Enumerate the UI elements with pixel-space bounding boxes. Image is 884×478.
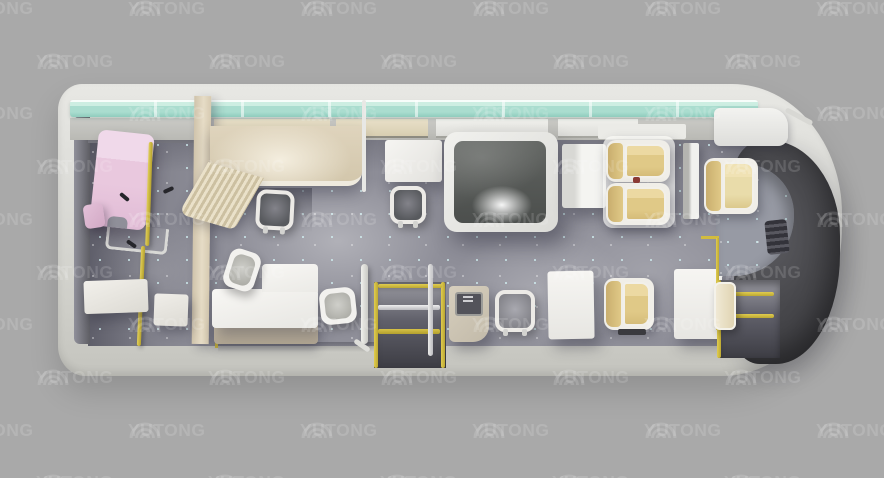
- seat-headrest: [608, 186, 623, 222]
- seat-headrest: [606, 281, 621, 327]
- yutong-logo-icon: [724, 50, 758, 71]
- yutong-wordmark: YUTONG: [128, 0, 206, 18]
- yutong-wordmark: YUTONG: [816, 420, 884, 440]
- side-table: [83, 279, 148, 314]
- yutong-wordmark: YUTONG: [472, 0, 550, 18]
- device-table-top: [454, 141, 546, 223]
- yutong-wordmark: YUTONG: [644, 0, 722, 18]
- yutong-logo-icon: [36, 366, 70, 387]
- yutong-wordmark: YUTONG: [724, 472, 802, 478]
- yutong-wordmark: YUTONG: [816, 0, 884, 18]
- yutong-wordmark: YUTONG: [208, 51, 286, 71]
- stair-rail: [374, 282, 378, 368]
- stool-chair: [495, 290, 535, 332]
- table: [547, 271, 594, 340]
- seat-headrest: [608, 143, 623, 179]
- yutong-wordmark: YUTONG: [552, 51, 630, 71]
- yutong-logo-icon: [300, 0, 334, 18]
- stair-pole: [428, 264, 433, 356]
- exam-bed-notch: [107, 216, 128, 229]
- yutong-wordmark: YUTONG: [0, 314, 34, 334]
- sink-faucet: [463, 300, 473, 302]
- yutong-wordmark: YUTONG: [380, 472, 458, 478]
- yutong-wordmark: YUTONG: [0, 0, 34, 18]
- consult-desk-wing: [262, 264, 318, 292]
- yutong-logo-icon: [472, 0, 506, 18]
- yutong-wordmark: YUTONG: [644, 420, 722, 440]
- yutong-logo-icon: [552, 471, 586, 478]
- yutong-logo-icon: [300, 419, 334, 440]
- yutong-logo-icon: [816, 102, 850, 123]
- yutong-wordmark: YUTONG: [36, 472, 114, 478]
- yutong-wordmark: YUTONG: [0, 420, 34, 440]
- yutong-wordmark: YUTONG: [300, 0, 378, 18]
- seat-cushion: [625, 144, 666, 178]
- yutong-wordmark: YUTONG: [472, 420, 550, 440]
- yutong-logo-icon: [552, 50, 586, 71]
- front-door-seat-panel: [714, 282, 736, 330]
- yutong-logo-icon: [644, 419, 678, 440]
- seatbelt-buckle: [633, 177, 640, 183]
- stool-chair: [255, 189, 295, 231]
- yutong-wordmark: YUTONG: [36, 51, 114, 71]
- seat-headrest: [706, 161, 721, 211]
- yutong-logo-icon: [380, 471, 414, 478]
- partition-wall-2: [683, 143, 699, 219]
- cabinet-table: [385, 140, 442, 182]
- passenger-seat: [606, 140, 670, 182]
- bus-floorplan-render: YUTONGYUTONGYUTONGYUTONGYUTONGYUTONGYUTO…: [0, 0, 884, 478]
- yutong-logo-icon: [208, 50, 242, 71]
- yutong-wordmark: YUTONG: [816, 103, 884, 123]
- stool-chair: [390, 186, 426, 224]
- yutong-wordmark: YUTONG: [0, 103, 34, 123]
- sink-basin: [455, 292, 483, 316]
- seat-cushion: [623, 282, 650, 326]
- yutong-wordmark: YUTONG: [0, 209, 34, 229]
- yutong-logo-icon: [380, 50, 414, 71]
- yutong-logo-icon: [36, 50, 70, 71]
- yutong-wordmark: YUTONG: [724, 51, 802, 71]
- stair-rail: [441, 282, 445, 368]
- seat-cushion: [723, 162, 754, 210]
- passenger-seat: [604, 278, 654, 330]
- exam-stool: [82, 203, 105, 230]
- front-roof-panel: [714, 108, 788, 146]
- yutong-wordmark: YUTONG: [208, 472, 286, 478]
- yutong-wordmark: YUTONG: [128, 420, 206, 440]
- yutong-logo-icon: [816, 0, 850, 18]
- yutong-logo-icon: [644, 0, 678, 18]
- roof-support-pole: [362, 100, 366, 192]
- consult-desk: [212, 289, 318, 328]
- small-table: [153, 293, 188, 326]
- yutong-wordmark: YUTONG: [300, 420, 378, 440]
- yutong-logo-icon: [208, 471, 242, 478]
- sink-cabinet: [449, 286, 489, 342]
- side-window-glass-strip: [70, 100, 758, 117]
- yutong-logo-icon: [36, 471, 70, 478]
- yutong-wordmark: YUTONG: [552, 472, 630, 478]
- driver-seat: [704, 158, 758, 214]
- engine-grille: [764, 219, 789, 255]
- yutong-logo-icon: [724, 471, 758, 478]
- seat-cushion: [625, 187, 666, 221]
- door-handrail: [361, 264, 368, 344]
- cabinet-box: [562, 144, 606, 208]
- yutong-logo-icon: [816, 419, 850, 440]
- seat-base: [618, 329, 646, 335]
- passenger-seat: [606, 183, 670, 225]
- yutong-logo-icon: [472, 419, 506, 440]
- mid-door-stairwell: [374, 282, 446, 368]
- yutong-logo-icon: [128, 419, 162, 440]
- shell-chair: [318, 286, 358, 326]
- yutong-logo-icon: [128, 0, 162, 18]
- yutong-wordmark: YUTONG: [380, 51, 458, 71]
